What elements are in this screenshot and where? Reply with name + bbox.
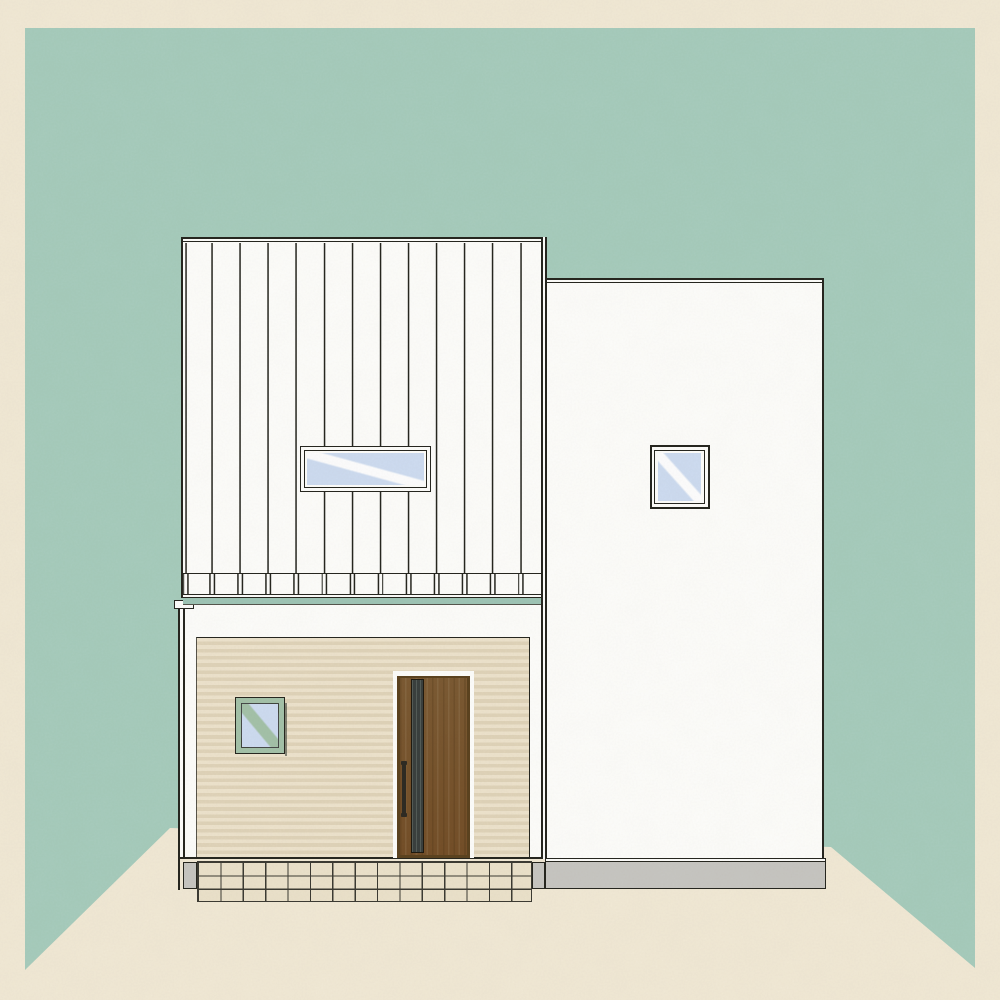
right-building: [547, 278, 824, 859]
wall-base-line: [178, 857, 545, 859]
wall-edge-outer-line: [178, 601, 180, 890]
tile-apron: [197, 861, 533, 902]
upper-left-building: [181, 237, 546, 598]
window-inner-frame: [654, 450, 704, 504]
parapet-line: [547, 282, 822, 283]
volume-junction-line: [541, 237, 547, 859]
door-glass-slit: [411, 679, 424, 853]
window-glass: [658, 453, 701, 500]
door-slab: [400, 678, 468, 855]
green-framed-window: [235, 697, 285, 754]
left-foundation-block: [183, 862, 197, 889]
interfloor-recess-band: [183, 598, 542, 605]
door-frame: [397, 676, 470, 859]
right-small-window: [650, 445, 710, 509]
wall-edge-inner-line: [183, 607, 185, 858]
foundation-cap-strip: [546, 859, 825, 862]
entry-door-unit: [393, 671, 474, 858]
right-foundation: [545, 858, 826, 889]
vertical-siding: [183, 243, 546, 573]
door-handle: [402, 763, 406, 815]
illustration-page: [0, 0, 1000, 1000]
window-inner-frame: [304, 450, 427, 488]
window-glass: [241, 703, 279, 748]
right-foundation-block: [532, 862, 545, 889]
siding-board-ends: [183, 573, 546, 594]
lower-left-building: [178, 600, 545, 858]
window-glass: [307, 453, 425, 486]
upper-horizontal-window: [300, 446, 431, 492]
